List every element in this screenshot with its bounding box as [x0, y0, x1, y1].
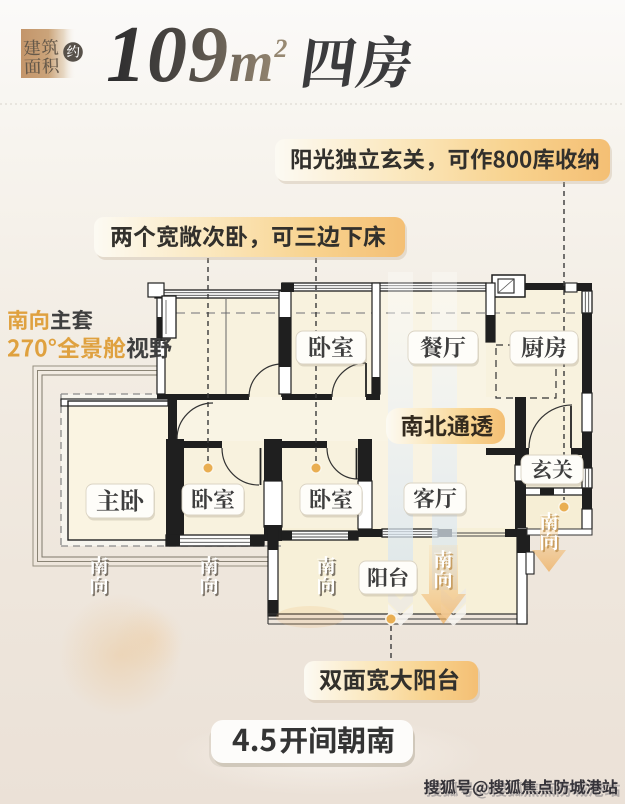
- svg-text:109m2: 109m2: [106, 11, 288, 99]
